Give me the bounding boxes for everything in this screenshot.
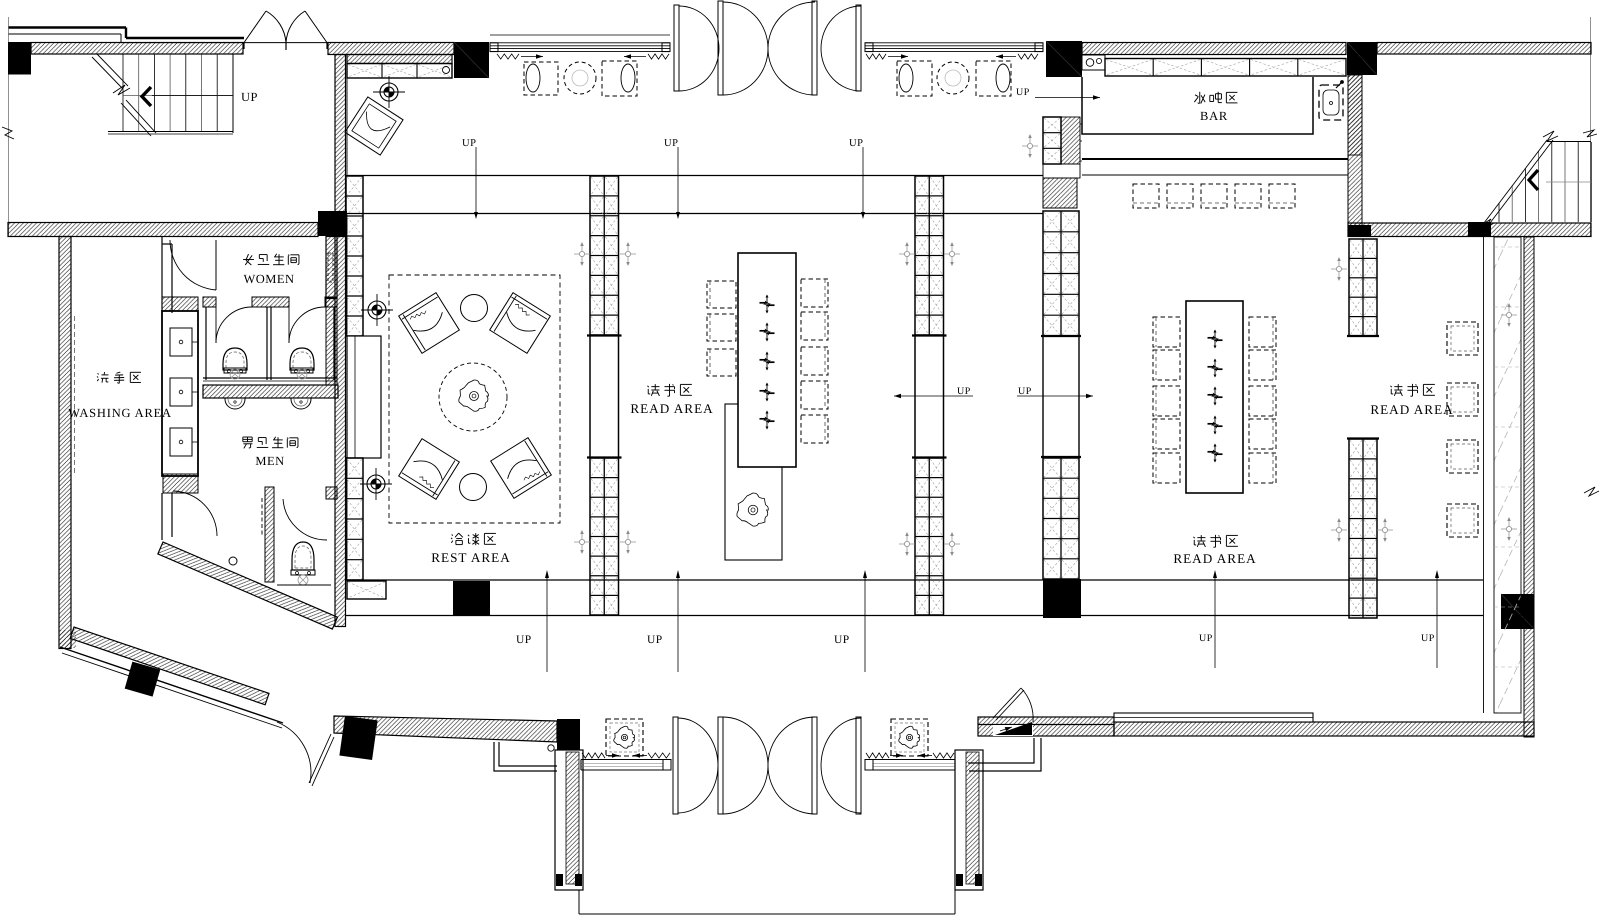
svg-text:UP: UP	[1421, 633, 1435, 644]
svg-text:WASHING AREA: WASHING AREA	[68, 406, 172, 420]
svg-text:UP: UP	[462, 138, 476, 149]
svg-text:WOMEN: WOMEN	[243, 272, 294, 286]
svg-text:UP: UP	[1199, 633, 1213, 644]
svg-text:REST AREA: REST AREA	[431, 550, 510, 565]
svg-text:BAR: BAR	[1200, 109, 1228, 123]
svg-text:UP: UP	[516, 634, 532, 646]
svg-text:READ AREA: READ AREA	[630, 401, 713, 416]
svg-text:UP: UP	[241, 90, 258, 104]
svg-text:UP: UP	[1018, 386, 1032, 397]
svg-text:UP: UP	[647, 634, 663, 646]
svg-text:UP: UP	[664, 138, 678, 149]
svg-text:MEN: MEN	[255, 454, 284, 468]
svg-text:READ AREA: READ AREA	[1370, 402, 1453, 417]
svg-text:UP: UP	[1016, 87, 1030, 98]
svg-text:UP: UP	[834, 634, 850, 646]
svg-text:UP: UP	[849, 138, 863, 149]
svg-text:UP: UP	[957, 386, 971, 397]
svg-text:READ AREA: READ AREA	[1173, 551, 1256, 566]
